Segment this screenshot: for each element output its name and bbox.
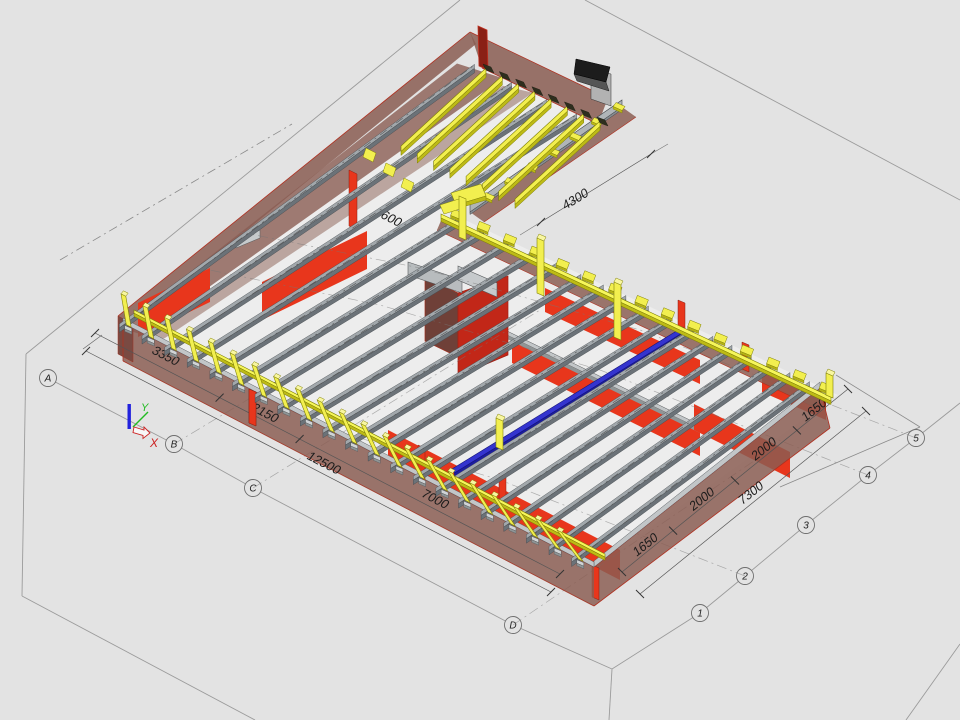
svg-text:A: A (44, 374, 52, 385)
svg-text:5: 5 (913, 434, 919, 445)
svg-text:Y: Y (141, 402, 149, 414)
svg-text:C: C (249, 484, 257, 495)
svg-text:X: X (149, 436, 159, 450)
svg-text:3: 3 (803, 521, 809, 532)
svg-text:4: 4 (865, 471, 871, 482)
svg-text:B: B (171, 440, 178, 451)
svg-text:1: 1 (697, 609, 703, 620)
svg-text:D: D (509, 621, 516, 632)
svg-text:2: 2 (741, 572, 748, 583)
